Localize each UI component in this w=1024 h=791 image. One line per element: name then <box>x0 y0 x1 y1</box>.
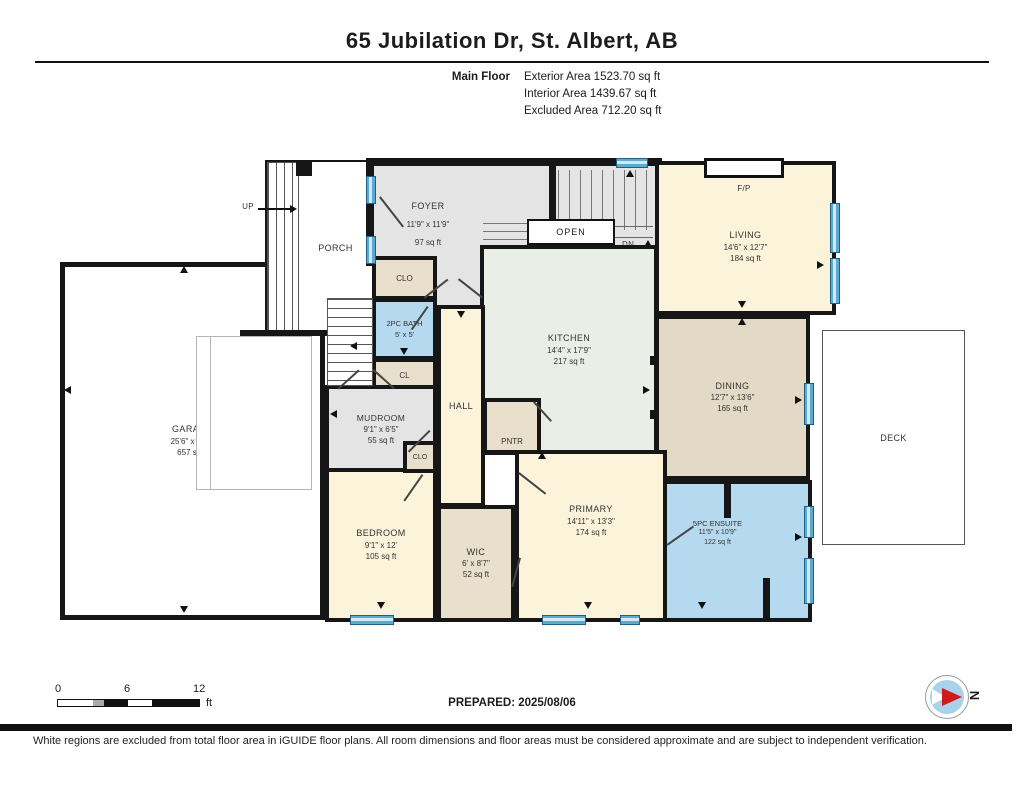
room-area: 105 sq ft <box>356 552 405 562</box>
porch-corner-post <box>296 162 312 176</box>
compass-needle <box>942 688 962 706</box>
room-name: BEDROOM <box>356 528 405 539</box>
window-marker <box>804 506 814 538</box>
exterior-steps-divider <box>210 336 211 490</box>
open-label: OPEN <box>556 227 586 237</box>
window-marker <box>542 615 586 625</box>
room-area: 55 sq ft <box>357 436 406 446</box>
porch-up-arrow-icon <box>290 205 297 213</box>
direction-arrow-icon <box>64 386 71 394</box>
room-name: 5PC ENSUITE <box>693 519 742 528</box>
room-name: FOYER <box>411 201 444 211</box>
room-dims: 6' x 8'7" <box>462 559 490 569</box>
room-dims: 9'1" x 6'5" <box>357 425 406 435</box>
disclaimer-text: White regions are excluded from total fl… <box>33 735 993 747</box>
room-name: MUDROOM <box>357 413 406 424</box>
footer-bar <box>0 724 1012 731</box>
hall-label: HALL <box>449 401 473 411</box>
closet-label: CL <box>399 371 409 380</box>
room-primary: PRIMARY 14'11" x 13'3" 174 sq ft <box>515 450 667 622</box>
porch-stairs <box>267 162 299 333</box>
kitchen-wall-stub <box>650 410 659 419</box>
direction-arrow-icon <box>698 602 706 609</box>
room-area: 97 sq ft <box>415 238 441 247</box>
room-name: LIVING <box>724 230 768 241</box>
scale-tick-0: 0 <box>55 683 61 695</box>
exterior-steps-outline <box>196 336 312 490</box>
stair-landing-line <box>615 237 653 238</box>
room-area: 217 sq ft <box>547 357 591 367</box>
room-name: PRIMARY <box>567 504 615 515</box>
pantry-label: PNTR <box>501 437 523 446</box>
direction-arrow-icon <box>626 170 634 177</box>
direction-arrow-icon <box>817 261 824 269</box>
header-divider <box>35 61 989 63</box>
room-dims: 12'7" x 13'6" <box>711 393 755 403</box>
exterior-area: Exterior Area 1523.70 sq ft <box>524 71 660 83</box>
window-marker <box>804 383 814 425</box>
stair-open-box: OPEN <box>527 219 615 245</box>
porch-up-label: UP <box>238 202 258 211</box>
excluded-area: Excluded Area 712.20 sq ft <box>524 105 661 117</box>
window-marker <box>830 203 840 253</box>
direction-arrow-icon <box>795 396 802 404</box>
direction-arrow-icon <box>330 410 337 418</box>
room-dims: 14'11" x 13'3" <box>567 517 615 527</box>
compass-icon <box>925 675 969 719</box>
interior-area: Interior Area 1439.67 sq ft <box>524 88 656 100</box>
room-wic: WIC 6' x 8'7" 52 sq ft <box>437 505 515 622</box>
room-name: DINING <box>711 381 755 392</box>
room-ensuite: 5PC ENSUITE 11'5" x 10'9" 122 sq ft <box>663 480 812 622</box>
kitchen-wall-stub <box>650 356 659 365</box>
hall: HALL <box>437 305 485 507</box>
room-area: 174 sq ft <box>567 528 615 538</box>
ensuite-wall-stub <box>724 482 731 518</box>
window-marker <box>366 236 376 264</box>
room-deck: DECK <box>822 330 965 545</box>
room-bedroom: BEDROOM 9'1" x 12' 105 sq ft <box>325 468 437 622</box>
window-marker <box>830 258 840 304</box>
scale-tick-6: 6 <box>124 683 130 695</box>
direction-arrow-icon <box>180 606 188 613</box>
room-dining: DINING 12'7" x 13'6" 165 sq ft <box>655 315 810 480</box>
room-dims: 5' x 5' <box>386 330 422 339</box>
fireplace-box <box>704 158 784 178</box>
closet-label: CLO <box>396 274 412 283</box>
window-marker <box>616 158 648 168</box>
stair-divider-wall <box>549 166 556 224</box>
direction-arrow-icon <box>643 386 650 394</box>
scale-tick-12: 12 <box>193 683 205 695</box>
deck-label: DECK <box>880 433 907 443</box>
room-name: KITCHEN <box>547 333 591 344</box>
page-title: 65 Jubilation Dr, St. Albert, AB <box>0 28 1024 54</box>
direction-arrow-icon <box>795 533 802 541</box>
fireplace-label: F/P <box>724 184 764 193</box>
window-marker <box>804 558 814 604</box>
direction-arrow-icon <box>457 311 465 318</box>
porch-label: PORCH <box>318 243 353 253</box>
direction-arrow-icon <box>538 452 546 459</box>
window-marker <box>620 615 640 625</box>
room-dims: 14'4" x 17'9" <box>547 346 591 356</box>
room-area: 52 sq ft <box>462 570 490 580</box>
closet-label: CLO <box>413 454 427 461</box>
pantry: PNTR <box>483 398 541 454</box>
floor-label: Main Floor <box>415 71 510 83</box>
ensuite-wall-stub <box>763 578 770 620</box>
room-area: 184 sq ft <box>724 254 768 264</box>
window-marker <box>366 176 376 204</box>
window-marker <box>350 615 394 625</box>
room-area: 165 sq ft <box>711 404 755 414</box>
direction-arrow-icon <box>738 301 746 308</box>
direction-arrow-icon <box>377 602 385 609</box>
room-dims: 9'1" x 12' <box>356 541 405 551</box>
direction-arrow-icon <box>584 602 592 609</box>
floorplan-page: 65 Jubilation Dr, St. Albert, AB Main Fl… <box>0 0 1024 791</box>
direction-arrow-icon <box>350 342 357 350</box>
direction-arrow-icon <box>400 348 408 355</box>
room-area: 122 sq ft <box>693 539 742 548</box>
porch-up-arrow-line <box>258 208 290 210</box>
room-dims: 11'5" x 10'9" <box>693 529 742 538</box>
room-dims: 14'6" x 12'7" <box>724 243 768 253</box>
direction-arrow-icon <box>180 266 188 273</box>
compass-north-label: N <box>967 691 982 700</box>
room-name: WIC <box>462 547 490 558</box>
closet-bottom: CLO <box>403 441 437 473</box>
stair-landing-line <box>615 226 653 227</box>
room-dims: 11'9" x 11'9" <box>407 220 450 229</box>
direction-arrow-icon <box>738 318 746 325</box>
prepared-date: PREPARED: 2025/08/06 <box>0 697 1024 709</box>
